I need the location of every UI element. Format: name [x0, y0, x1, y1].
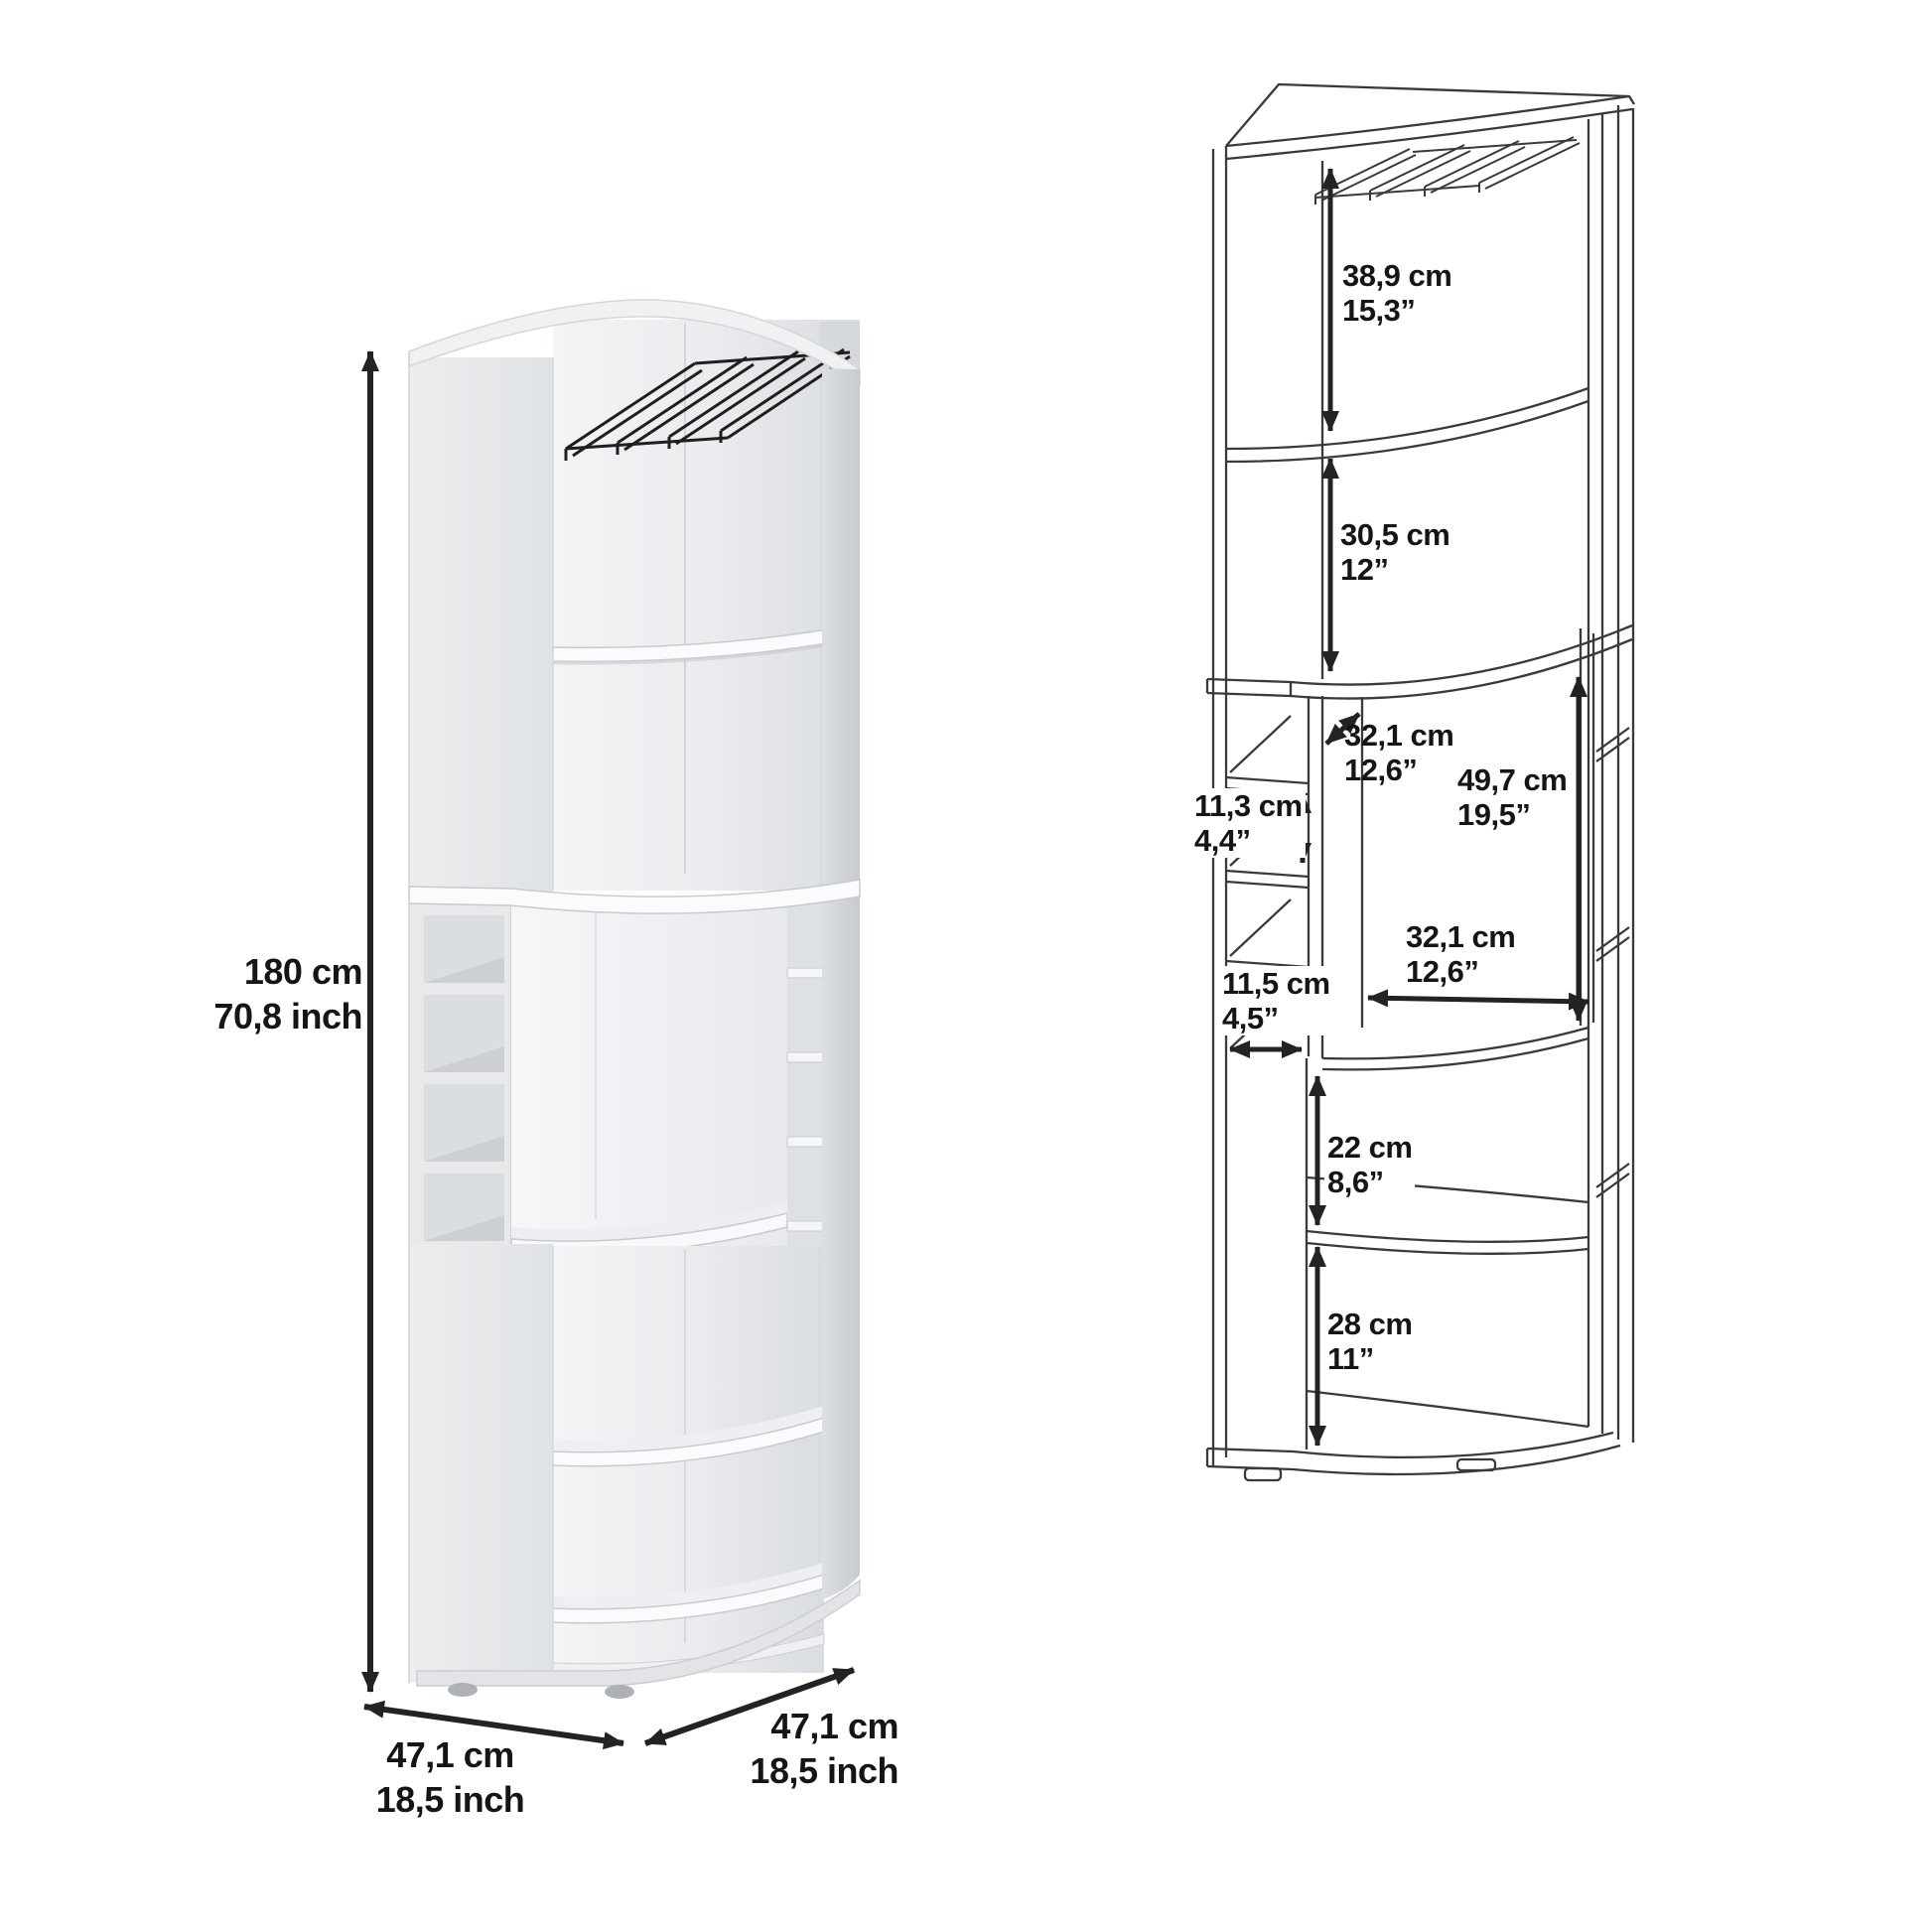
middle-height-inch: 19,5”	[1457, 797, 1567, 832]
overall-height-inch: 70,8 inch	[159, 994, 362, 1038]
left-side-panel-lower	[409, 1244, 553, 1683]
depth-left-cm: 47,1 cm	[334, 1732, 567, 1777]
foot	[448, 1683, 478, 1697]
depth-right-cm: 47,1 cm	[700, 1704, 898, 1748]
upper-compartment	[553, 320, 860, 891]
middle-height-label: 49,7 cm 19,5”	[1457, 762, 1567, 832]
middle-depth-cm: 32,1 cm	[1344, 718, 1453, 753]
upper-section-inch: 12”	[1340, 552, 1449, 587]
base-line	[1207, 1433, 1613, 1457]
rendered-cabinet	[409, 300, 860, 1699]
rack-section-inch: 15,3”	[1342, 293, 1451, 328]
depth-left-inch: 18,5 inch	[334, 1777, 567, 1822]
middle-depth-label: 32,1 cm 12,6”	[1344, 718, 1453, 787]
side-shelf-column	[787, 892, 824, 1251]
cubby-width-inch: 4,5”	[1222, 1001, 1330, 1035]
bottom-shelf-label: 28 cm 11”	[1324, 1307, 1415, 1376]
depth-right-label: 47,1 cm 18,5 inch	[700, 1704, 898, 1793]
foot	[605, 1685, 634, 1699]
cubby-height-label: 11,3 cm 4,4”	[1191, 788, 1306, 858]
bottom-shelf-inch: 11”	[1327, 1341, 1412, 1376]
cubby-height-inch: 4,4”	[1194, 823, 1303, 858]
bottle-cubby-column	[409, 898, 511, 1246]
lower-shelf-cm: 22 cm	[1327, 1130, 1412, 1165]
cubby-width-label: 11,5 cm 4,5”	[1219, 966, 1333, 1035]
middle-width-cm: 32,1 cm	[1406, 919, 1515, 954]
upper-section-label: 30,5 cm 12”	[1340, 517, 1449, 587]
lower-shelf-line	[1307, 1231, 1588, 1242]
middle-width-label: 32,1 cm 12,6”	[1406, 919, 1515, 989]
left-side-panel-upper	[409, 357, 553, 898]
stemware-rack-lines	[1315, 137, 1580, 205]
cubby-width-cm: 11,5 cm	[1222, 966, 1330, 1001]
middle-width-inch: 12,6”	[1406, 954, 1515, 989]
overall-height-label: 180 cm 70,8 inch	[159, 949, 362, 1038]
counter-line	[1207, 625, 1632, 685]
bottom-shelf-cm: 28 cm	[1327, 1307, 1412, 1341]
middle-width-arrow	[1368, 998, 1588, 1002]
foot-outline	[1245, 1468, 1281, 1480]
middle-open-compartment	[511, 898, 787, 1246]
lower-shelf-inch: 8,6”	[1327, 1165, 1412, 1199]
upper-section-cm: 30,5 cm	[1340, 517, 1449, 552]
rack-section-label: 38,9 cm 15,3”	[1342, 258, 1451, 328]
middle-depth-inch: 12,6”	[1344, 753, 1453, 787]
product-dimension-sheet: 180 cm 70,8 inch 47,1 cm 18,5 inch 47,1 …	[0, 0, 1932, 1932]
overall-height-cm: 180 cm	[159, 949, 362, 994]
depth-left-label: 47,1 cm 18,5 inch	[334, 1732, 567, 1822]
lower-shelf-label: 22 cm 8,6”	[1324, 1130, 1415, 1199]
middle-height-cm: 49,7 cm	[1457, 762, 1567, 797]
cubby-height-cm: 11,3 cm	[1194, 788, 1303, 823]
rack-section-cm: 38,9 cm	[1342, 258, 1451, 293]
depth-right-inch: 18,5 inch	[700, 1748, 898, 1793]
right-curved-panel	[822, 368, 860, 1599]
